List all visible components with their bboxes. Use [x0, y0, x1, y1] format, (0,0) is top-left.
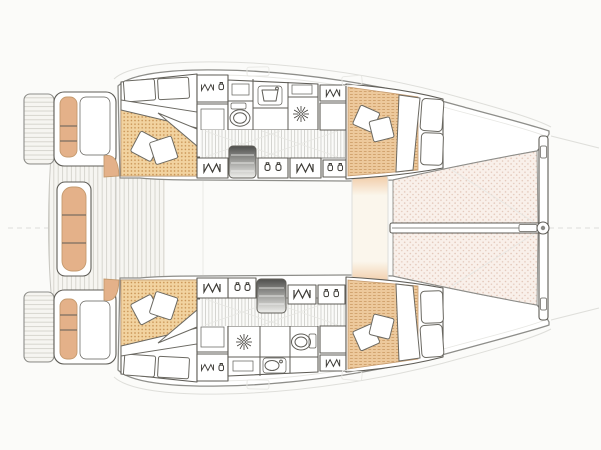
locker	[233, 361, 253, 371]
shelf	[201, 109, 224, 130]
shelf-locker	[228, 278, 256, 298]
port-aft-cabin	[121, 74, 197, 176]
headboard-pillow	[123, 79, 155, 102]
foredeck-lounge-pad	[352, 173, 388, 286]
swim-platform-starboard	[24, 292, 54, 362]
shelf-locker	[318, 285, 345, 304]
locker	[320, 103, 346, 130]
shelf-locker	[323, 160, 347, 177]
berth-cushion	[420, 133, 443, 166]
bench-cushion-starboard	[60, 299, 77, 359]
shelf	[201, 327, 224, 347]
forestay-pin	[541, 226, 545, 230]
wardrobe-locker	[197, 158, 228, 178]
port-bathroom	[228, 79, 318, 130]
wardrobe-locker	[288, 285, 316, 304]
transom-seat-port	[80, 97, 110, 155]
crossbeam-cleat-starboard	[541, 298, 547, 310]
corner-cushion-starboard	[104, 279, 119, 301]
shelf-locker	[258, 158, 288, 178]
basin-icon	[258, 86, 282, 105]
throw-pillow	[369, 314, 394, 339]
locker	[232, 84, 249, 95]
basin-icon	[263, 358, 286, 373]
berth-cushion	[420, 291, 443, 324]
bow-whisker-port	[551, 136, 599, 148]
berth-cushion	[420, 324, 444, 357]
wardrobe-locker	[320, 355, 346, 371]
starboard-hull-interior	[121, 277, 444, 389]
starboard-bathroom	[228, 326, 318, 376]
starboard-aft-cabin	[121, 280, 197, 382]
catamaran-plan-svg	[0, 0, 601, 450]
headboard-pillow	[157, 356, 189, 379]
swim-platform-port	[24, 94, 54, 164]
wardrobe-locker	[197, 278, 228, 298]
port-corridor	[200, 130, 345, 158]
bench-cushion-port	[60, 97, 77, 157]
port-hull-interior	[121, 67, 444, 179]
transom-seat-starboard	[80, 301, 110, 359]
wardrobe-locker	[320, 85, 346, 101]
bowsprit-fitting-plate	[519, 225, 537, 232]
locker	[292, 85, 312, 94]
locker	[320, 326, 346, 353]
center-bench-cushion	[62, 187, 86, 271]
throw-pillow	[369, 117, 394, 142]
bow-whisker-starboard	[551, 308, 599, 320]
crossbeam-cleat-port	[541, 146, 547, 158]
headboard-pillow	[123, 354, 155, 377]
wardrobe-locker	[290, 158, 321, 178]
cockpit-sole-teak	[117, 178, 165, 278]
berth-cushion	[420, 98, 444, 131]
companionway-steps-icon	[229, 146, 256, 178]
corner-cushion-port	[104, 155, 119, 177]
headboard-pillow	[157, 77, 189, 100]
floorplan-canvas	[0, 0, 601, 450]
